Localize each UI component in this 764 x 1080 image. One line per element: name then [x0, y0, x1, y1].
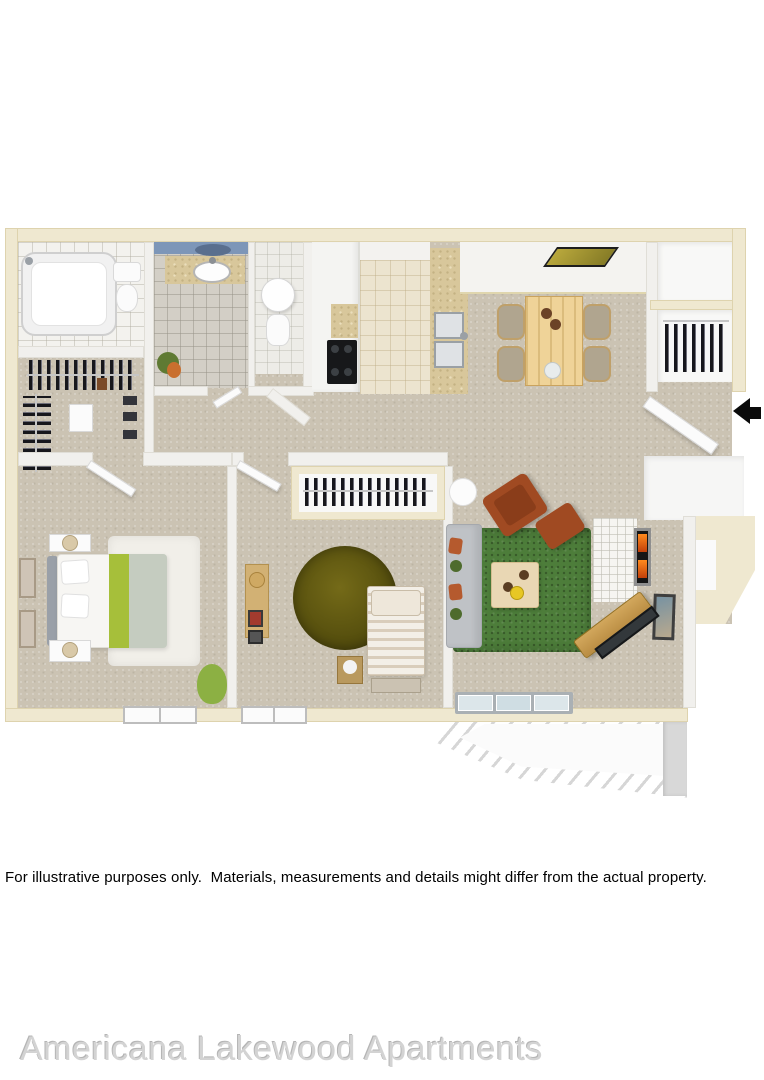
kitchen-sink-2: [434, 341, 464, 368]
toilet-1-bowl: [116, 284, 138, 312]
kitchen-faucet: [460, 332, 468, 340]
watermark-text: Americana Lakewood Apartments: [20, 1030, 543, 1069]
master-picture-2: [19, 610, 36, 648]
entry-arrow-shaft: [749, 407, 761, 419]
outer-wall-right: [732, 228, 746, 392]
sofa-pillow-1: [448, 537, 463, 555]
bedroom-2-nightstand-lamp: [343, 660, 357, 674]
fireplace-flame-1: [638, 534, 647, 552]
master-picture-1: [19, 558, 36, 598]
linen-closet: [658, 242, 732, 300]
wall-living-right: [683, 516, 696, 708]
fireplace-hearth: [593, 518, 637, 602]
closet-rod-top: [27, 374, 139, 376]
burner-4: [344, 368, 352, 376]
shower-head-icon: [25, 257, 33, 265]
dining-chair-1: [497, 304, 525, 340]
toilet-2-bowl: [266, 314, 290, 346]
bedroom-2-frame-1: [248, 610, 263, 627]
sofa-pillow-2: [448, 583, 463, 600]
dining-chair-3: [583, 304, 611, 340]
master-window-divider: [159, 706, 161, 724]
master-bed-throw: [109, 554, 129, 648]
sliding-door-pane-1: [458, 695, 493, 711]
dining-chair-2: [497, 346, 525, 382]
outer-wall-bottom: [5, 708, 688, 722]
bedroom-2-pillows: [371, 590, 421, 616]
coat-closet-rod: [663, 320, 729, 322]
master-pillow-1: [60, 559, 90, 585]
wall-left-zone: [144, 242, 154, 464]
table-bowl-2: [550, 319, 561, 330]
sliding-door-pane-2: [496, 695, 531, 711]
wall-master-bed2: [227, 466, 237, 708]
closet-storage-box: [69, 404, 93, 432]
bathroom-2-faucet: [209, 257, 216, 264]
coffee-table-bowl-1: [519, 570, 529, 580]
coat-closet-clothes: [665, 324, 727, 372]
outer-wall-top: [5, 228, 746, 242]
kitchen-counter: [331, 304, 358, 338]
wall-bath2-bottom: [154, 386, 208, 396]
shoes-1: [123, 396, 137, 405]
bathtub-basin: [31, 262, 107, 326]
master-lamp-2: [62, 642, 78, 658]
shoes-2: [123, 412, 137, 421]
closet-basket: [97, 378, 107, 390]
entry-arrow-icon: [733, 398, 750, 424]
coffee-table: [491, 562, 539, 608]
sofa-plant-2: [450, 608, 462, 620]
bedroom-2-closet-clothes: [305, 478, 431, 506]
toilet-2-tank: [261, 278, 295, 312]
exterior-notch: [696, 540, 716, 590]
master-bed-blanket: [129, 554, 167, 648]
table-bowl-1: [541, 308, 552, 319]
wall-bath2-toilet: [248, 242, 255, 388]
table-centerpiece: [544, 362, 561, 379]
wall-master-top-right: [143, 452, 232, 466]
wall-dining-closets: [646, 242, 658, 392]
page: { "disclaimer": { "text": "For illustrat…: [0, 0, 764, 1080]
kitchen-wall-band: [360, 242, 430, 260]
disclaimer-text: For illustrative purposes only. Material…: [5, 869, 707, 886]
burner-2: [344, 345, 352, 353]
master-pillow-2: [60, 593, 89, 618]
shoes-3: [123, 430, 137, 439]
dining-chair-4: [583, 346, 611, 382]
side-table: [449, 478, 477, 506]
sliding-door-pane-3: [534, 695, 569, 711]
plant-pot: [167, 362, 181, 378]
fireplace-flame-2: [638, 560, 647, 578]
exterior-white: [696, 624, 755, 708]
entry-closet-block: [644, 456, 744, 520]
burner-3: [331, 368, 339, 376]
wall-bath1-closet: [18, 346, 144, 358]
balcony-wall: [663, 722, 687, 796]
dining-wall-band: [460, 242, 646, 294]
sofa-plant-1: [450, 560, 462, 572]
bedroom-2-closet-rod: [303, 490, 433, 492]
bathroom-2-mirror: [195, 244, 231, 256]
kitchen-floor: [360, 260, 430, 394]
bedroom-2-lamp: [249, 572, 265, 588]
burner-1: [331, 345, 339, 353]
bedroom-2-window-divider: [273, 706, 275, 724]
bathroom-2-sink: [193, 261, 231, 283]
bedroom-2-frame-2: [248, 630, 263, 644]
master-bean-bag: [197, 664, 227, 704]
toilet-1-tank: [113, 262, 141, 282]
coffee-table-plate: [510, 586, 524, 600]
outer-wall-left: [5, 228, 18, 722]
master-lamp-1: [62, 535, 78, 551]
floorplan-image: [5, 228, 755, 846]
balcony-floor: [460, 724, 665, 776]
wall-bed2-top-right: [288, 452, 448, 466]
wall-master-top-left: [18, 452, 93, 466]
bedroom-2-bench: [371, 678, 421, 693]
